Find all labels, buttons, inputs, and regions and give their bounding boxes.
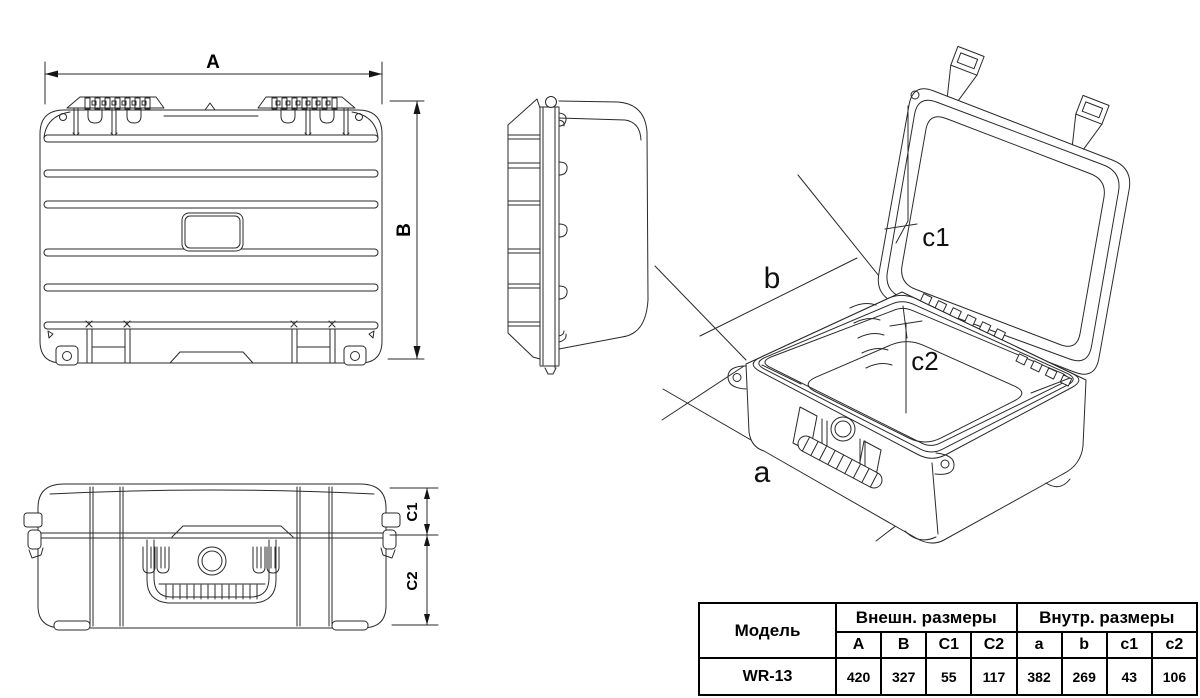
table-col-c2: c2: [1152, 632, 1197, 658]
front-foot-right: [344, 346, 366, 365]
iso-view-drawing: b a: [655, 46, 1130, 543]
dimension-C2: C2: [392, 535, 438, 625]
table-cell-C1: 55: [926, 658, 971, 695]
dimension-spec-table: Модель Внешн. размеры Внутр. размеры A B…: [698, 602, 1198, 696]
iso-lid-depth-label: c1: [922, 222, 949, 252]
iso-inner-length-label: a: [754, 456, 771, 489]
end-lid-height-label: C1: [404, 502, 421, 521]
technical-drawing-page: A B: [0, 0, 1200, 698]
end-view-drawing: C1 C2: [24, 484, 438, 630]
table-header-model: Модель: [699, 603, 836, 658]
front-view-drawing: A B: [40, 52, 424, 365]
table-header-internal: Внутр. размеры: [1017, 603, 1198, 632]
table-cell-B: 327: [881, 658, 926, 695]
table-col-a: a: [1017, 632, 1062, 658]
dimension-C1: C1: [390, 488, 438, 535]
front-width-label: A: [206, 52, 220, 73]
table-col-C1: C1: [926, 632, 971, 658]
dimension-A: A: [45, 52, 382, 104]
iso-inner-width-label: b: [764, 262, 781, 295]
front-foot-left: [56, 346, 78, 365]
table-header-external: Внешн. размеры: [836, 603, 1017, 632]
table-col-b: b: [1062, 632, 1107, 658]
table-row: WR-13 420 327 55 117 382 269 43 106: [699, 658, 1197, 695]
iso-body-depth-label: c2: [911, 346, 938, 376]
table-cell-a: 382: [1017, 658, 1062, 695]
table-cell-model: WR-13: [699, 658, 836, 695]
table-cell-C2: 117: [971, 658, 1016, 695]
end-body-height-label: C2: [404, 571, 421, 590]
table-col-c1: c1: [1107, 632, 1152, 658]
table-col-B: B: [881, 632, 926, 658]
table-cell-A: 420: [836, 658, 881, 695]
side-hinge-pin: [546, 97, 557, 108]
front-label-plate: [182, 213, 243, 251]
table-col-C2: C2: [971, 632, 1016, 658]
iso-open-latch-right: [1072, 95, 1109, 149]
end-foot-right: [332, 621, 368, 630]
table-cell-c1: 43: [1107, 658, 1152, 695]
table-cell-b: 269: [1062, 658, 1107, 695]
drawing-canvas: A B: [0, 0, 1200, 698]
table-col-A: A: [836, 632, 881, 658]
side-view-drawing: [508, 97, 648, 375]
end-foot-left: [54, 621, 90, 630]
iso-open-latch-left: [947, 46, 984, 100]
table-cell-c2: 106: [1152, 658, 1197, 695]
front-height-label: B: [394, 223, 415, 237]
dimension-B: B: [388, 101, 424, 359]
